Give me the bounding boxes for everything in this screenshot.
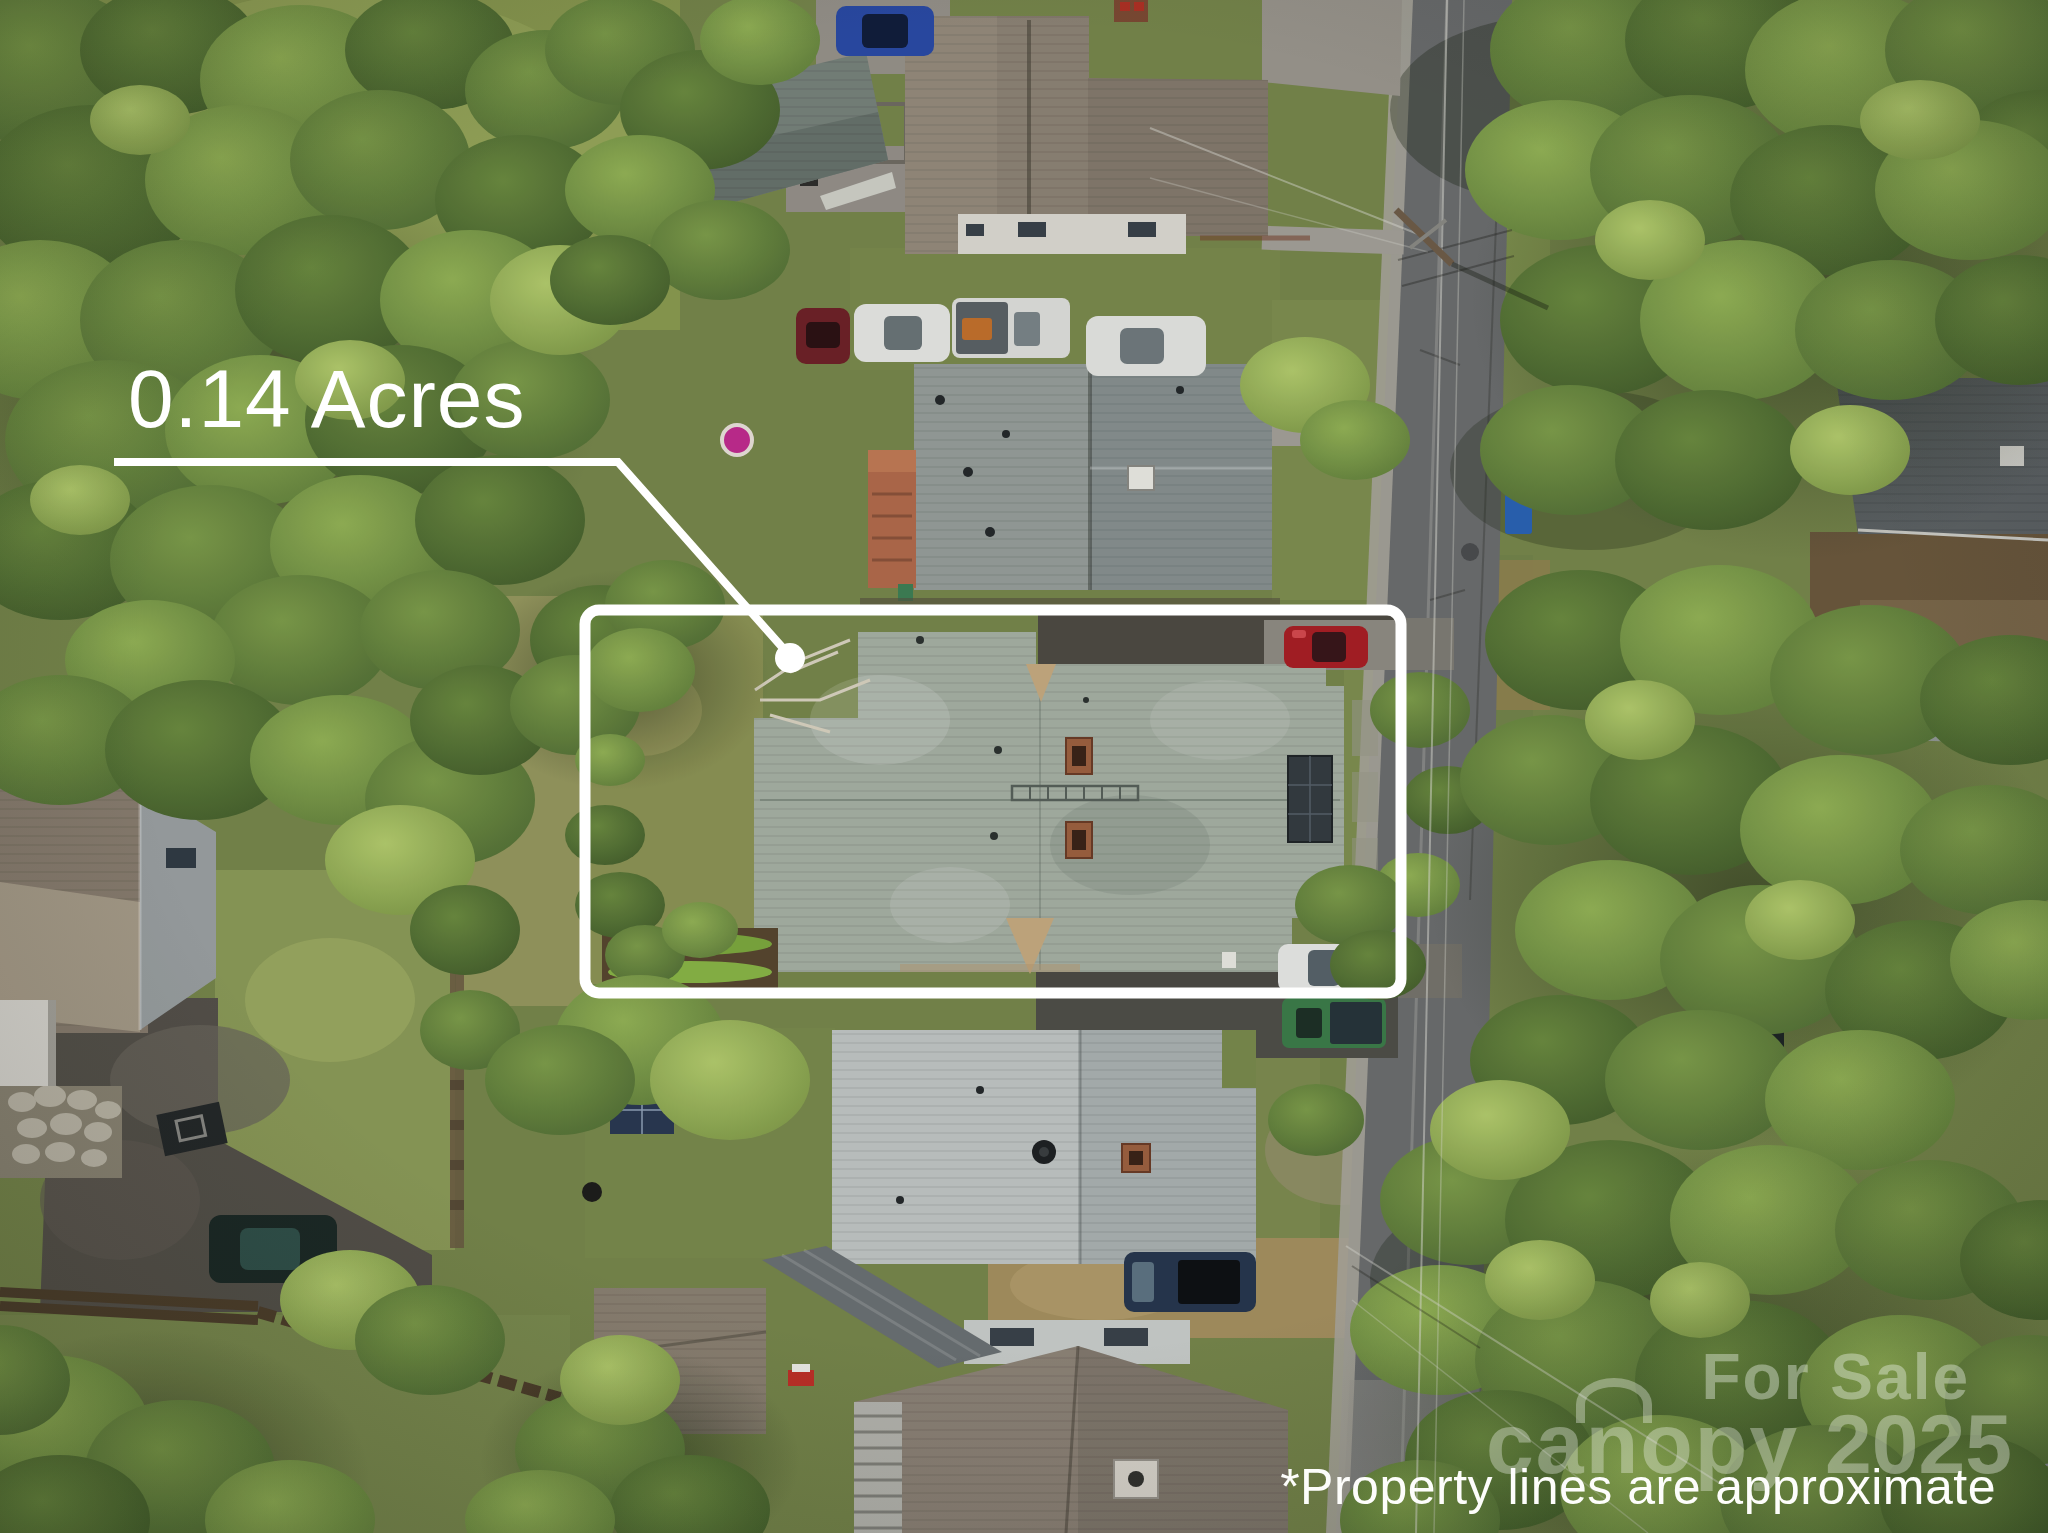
color-grade [0, 0, 2048, 1533]
canopy-roof-mark-icon [1576, 1378, 1652, 1423]
aerial-photo [0, 0, 2048, 1533]
acreage-label: 0.14 Acres [128, 352, 525, 446]
aerial-listing-photo: 0.14 Acres For Sale canopy 2025 *Propert… [0, 0, 2048, 1533]
disclaimer-text: *Property lines are approximate [1280, 1458, 1996, 1516]
